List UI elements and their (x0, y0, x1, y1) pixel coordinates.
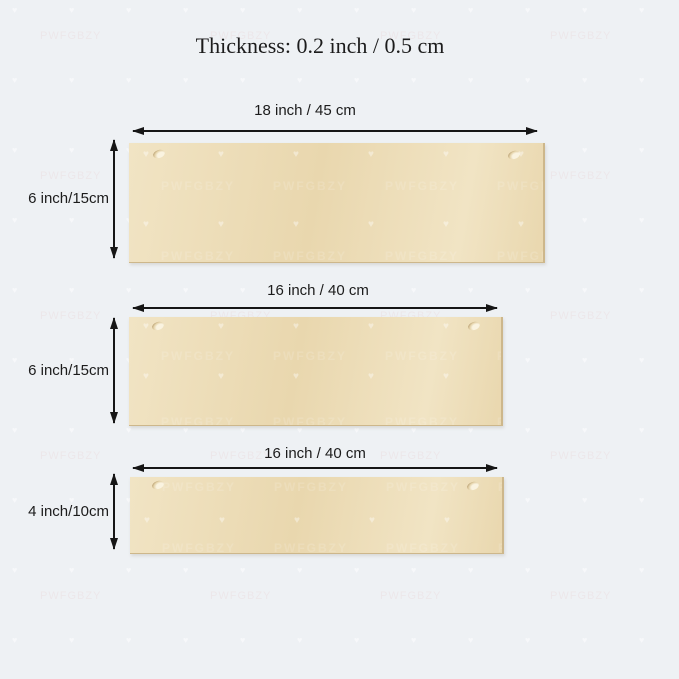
watermark: PWFGBZY (498, 480, 504, 494)
wood-board-16x4: ♥♥♥♥♥PWFGBZYPWFGBZYPWFGBZYPWFGBZYPWFGBZY… (130, 477, 504, 554)
arrowhead-right-icon (526, 127, 538, 135)
watermark: ♥ (411, 5, 416, 15)
watermark: PWFGBZY (273, 179, 347, 193)
watermark: ♥ (582, 635, 587, 645)
watermark: ♥ (183, 5, 188, 15)
width-arrow (133, 307, 497, 309)
watermark: ♥ (468, 285, 473, 295)
watermark: ♥ (240, 425, 245, 435)
watermark: PWFGBZY (274, 480, 348, 494)
watermark: ♥ (411, 635, 416, 645)
height-arrow (113, 474, 115, 549)
watermark: PWFGBZY (385, 249, 459, 263)
watermark: ♥ (443, 219, 449, 230)
arrowhead-up-icon (110, 317, 118, 329)
watermark: ♥ (297, 75, 302, 85)
watermark: PWFGBZY (161, 415, 235, 426)
watermark: ♥ (525, 75, 530, 85)
watermark: ♥ (369, 515, 375, 526)
watermark: ♥ (354, 635, 359, 645)
arrowhead-down-icon (110, 247, 118, 259)
watermark: ♥ (354, 5, 359, 15)
watermark: ♥ (12, 75, 17, 85)
watermark: PWFGBZY (210, 590, 271, 602)
watermark: ♥ (126, 285, 131, 295)
watermark: ♥ (218, 321, 224, 332)
watermark: ♥ (368, 219, 374, 230)
watermark: PWFGBZY (385, 179, 459, 193)
watermark: ♥ (639, 495, 644, 505)
watermark: PWFGBZY (497, 349, 503, 363)
watermark: ♥ (468, 565, 473, 575)
watermark: PWFGBZY (161, 349, 235, 363)
watermark: ♥ (639, 635, 644, 645)
watermark: PWFGBZY (386, 480, 460, 494)
watermark: ♥ (218, 149, 224, 160)
watermark: ♥ (354, 565, 359, 575)
watermark: ♥ (582, 565, 587, 575)
watermark: ♥ (12, 285, 17, 295)
watermark: PWFGBZY (380, 590, 441, 602)
watermark: ♥ (443, 149, 449, 160)
watermark: ♥ (183, 565, 188, 575)
watermark: PWFGBZY (40, 590, 101, 602)
watermark: ♥ (518, 219, 524, 230)
watermark: ♥ (443, 371, 449, 382)
watermark: PWFGBZY (498, 541, 504, 554)
watermark: ♥ (468, 635, 473, 645)
watermark: ♥ (468, 425, 473, 435)
watermark: ♥ (143, 371, 149, 382)
watermark: ♥ (639, 145, 644, 155)
watermark: PWFGBZY (273, 349, 347, 363)
watermark: PWFGBZY (550, 450, 611, 462)
watermark: PWFGBZY (550, 590, 611, 602)
watermark: PWFGBZY (40, 450, 101, 462)
height-label: 6 inch/15cm (0, 190, 109, 207)
watermark: ♥ (240, 5, 245, 15)
watermark: ♥ (639, 285, 644, 295)
watermark: ♥ (183, 75, 188, 85)
width-label: 16 inch / 40 cm (165, 445, 465, 462)
watermark: ♥ (368, 321, 374, 332)
height-label: 6 inch/15cm (0, 362, 109, 379)
watermark: ♥ (12, 145, 17, 155)
watermark: ♥ (69, 635, 74, 645)
watermark: ♥ (240, 75, 245, 85)
watermark: ♥ (582, 145, 587, 155)
watermark: ♥ (297, 635, 302, 645)
watermark: ♥ (582, 5, 587, 15)
watermark: ♥ (368, 149, 374, 160)
wood-board-18x6: ♥♥♥♥♥♥♥♥♥♥♥♥PWFGBZYPWFGBZYPWFGBZYPWFGBZY… (129, 143, 545, 263)
watermark: ♥ (293, 371, 299, 382)
watermark: PWFGBZY (497, 415, 503, 426)
watermark: PWFGBZY (40, 310, 101, 322)
watermark: ♥ (582, 425, 587, 435)
watermark: ♥ (411, 75, 416, 85)
watermark: ♥ (525, 5, 530, 15)
watermark: ♥ (293, 219, 299, 230)
watermark: ♥ (468, 75, 473, 85)
watermark: PWFGBZY (497, 249, 545, 263)
arrowhead-left-icon (132, 127, 144, 135)
watermark: ♥ (293, 149, 299, 160)
width-label: 16 inch / 40 cm (168, 282, 468, 299)
height-label: 4 inch/10cm (0, 503, 109, 520)
arrowhead-down-icon (110, 538, 118, 550)
watermark: ♥ (126, 75, 131, 85)
watermark: ♥ (219, 515, 225, 526)
watermark: PWFGBZY (550, 170, 611, 182)
watermark: ♥ (639, 355, 644, 365)
watermark: ♥ (468, 5, 473, 15)
watermark: ♥ (297, 5, 302, 15)
watermark: ♥ (143, 321, 149, 332)
watermark: PWFGBZY (161, 249, 235, 263)
watermark: ♥ (582, 495, 587, 505)
watermark: ♥ (69, 285, 74, 295)
watermark: ♥ (69, 425, 74, 435)
watermark: PWFGBZY (273, 415, 347, 426)
wood-board-16x6: ♥♥♥♥♥♥♥♥♥♥PWFGBZYPWFGBZYPWFGBZYPWFGBZYPW… (129, 317, 503, 426)
product-dimension-image: ♥♥♥♥♥♥♥♥♥♥♥♥♥♥♥♥♥♥♥♥♥♥♥♥♥♥♥♥♥♥♥♥♥♥♥♥♥♥♥♥… (0, 0, 679, 679)
watermark: ♥ (183, 425, 188, 435)
watermark: ♥ (639, 75, 644, 85)
watermark: ♥ (144, 515, 150, 526)
watermark: ♥ (582, 75, 587, 85)
watermark: ♥ (354, 425, 359, 435)
watermark: PWFGBZY (386, 541, 460, 554)
watermark: ♥ (143, 219, 149, 230)
watermark: ♥ (582, 285, 587, 295)
width-label: 18 inch / 45 cm (155, 102, 455, 119)
watermark: PWFGBZY (385, 349, 459, 363)
width-arrow (133, 467, 497, 469)
arrowhead-right-icon (486, 304, 498, 312)
watermark: ♥ (368, 371, 374, 382)
watermark: ♥ (126, 635, 131, 645)
watermark: ♥ (183, 635, 188, 645)
watermark: ♥ (639, 215, 644, 225)
watermark: ♥ (525, 425, 530, 435)
watermark: ♥ (639, 5, 644, 15)
watermark: ♥ (12, 5, 17, 15)
watermark: ♥ (639, 425, 644, 435)
watermark: ♥ (69, 5, 74, 15)
watermark: ♥ (525, 285, 530, 295)
watermark: ♥ (525, 565, 530, 575)
watermark: PWFGBZY (497, 179, 545, 193)
arrowhead-right-icon (486, 464, 498, 472)
height-arrow (113, 318, 115, 423)
watermark: ♥ (443, 321, 449, 332)
arrowhead-left-icon (132, 304, 144, 312)
hanging-hole-left (152, 148, 166, 159)
watermark: ♥ (240, 635, 245, 645)
width-arrow (133, 130, 537, 132)
watermark: PWFGBZY (385, 415, 459, 426)
watermark: ♥ (126, 5, 131, 15)
watermark: ♥ (69, 215, 74, 225)
hanging-hole-right (467, 320, 481, 331)
watermark: ♥ (525, 635, 530, 645)
watermark: ♥ (582, 355, 587, 365)
watermark: PWFGBZY (162, 541, 236, 554)
watermark: PWFGBZY (274, 541, 348, 554)
watermark: PWFGBZY (161, 179, 235, 193)
watermark: PWFGBZY (273, 249, 347, 263)
watermark: ♥ (143, 149, 149, 160)
hanging-hole-left (151, 320, 165, 331)
watermark: ♥ (525, 495, 530, 505)
watermark: ♥ (218, 371, 224, 382)
watermark: ♥ (69, 75, 74, 85)
watermark: ♥ (12, 425, 17, 435)
height-arrow (113, 140, 115, 258)
watermark: ♥ (411, 425, 416, 435)
watermark: ♥ (411, 565, 416, 575)
watermark: ♥ (518, 149, 524, 160)
watermark: ♥ (240, 565, 245, 575)
watermark: ♥ (297, 565, 302, 575)
watermark: ♥ (69, 145, 74, 155)
hanging-hole-right (466, 480, 480, 491)
watermark: ♥ (126, 565, 131, 575)
watermark: ♥ (525, 355, 530, 365)
arrowhead-down-icon (110, 412, 118, 424)
watermark: ♥ (582, 215, 587, 225)
thickness-title: Thickness: 0.2 inch / 0.5 cm (0, 33, 640, 59)
watermark: ♥ (294, 515, 300, 526)
watermark: ♥ (639, 565, 644, 575)
watermark: ♥ (444, 515, 450, 526)
watermark: ♥ (12, 215, 17, 225)
watermark: ♥ (218, 219, 224, 230)
watermark: ♥ (12, 565, 17, 575)
watermark: PWFGBZY (550, 310, 611, 322)
arrowhead-up-icon (110, 473, 118, 485)
watermark: ♥ (297, 425, 302, 435)
arrowhead-up-icon (110, 139, 118, 151)
watermark: ♥ (126, 425, 131, 435)
watermark: ♥ (293, 321, 299, 332)
watermark: PWFGBZY (40, 170, 101, 182)
watermark: ♥ (354, 75, 359, 85)
watermark: ♥ (12, 635, 17, 645)
arrowhead-left-icon (132, 464, 144, 472)
watermark: PWFGBZY (162, 480, 236, 494)
watermark: ♥ (69, 565, 74, 575)
